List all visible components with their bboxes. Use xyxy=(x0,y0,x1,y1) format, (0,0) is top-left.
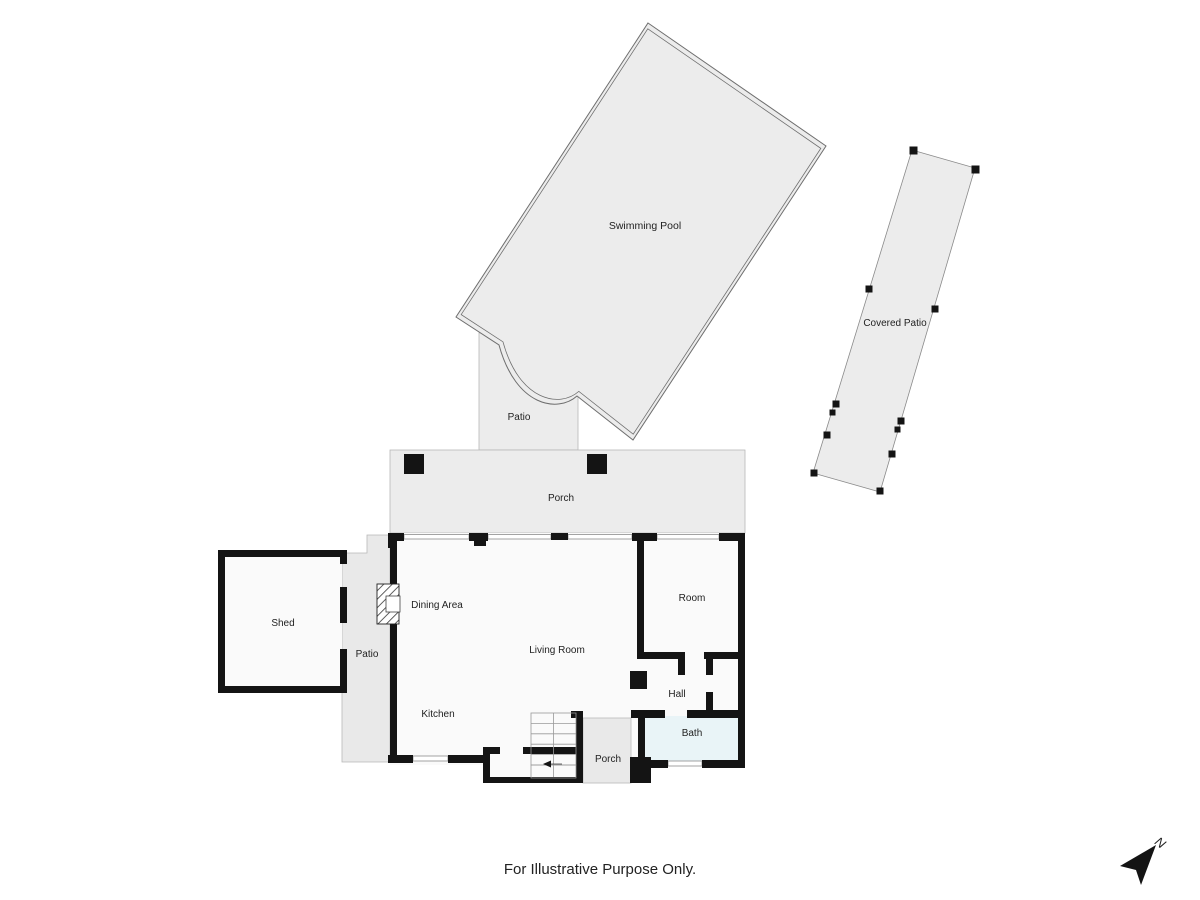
window xyxy=(657,535,719,540)
floor-plan-page: Patio Shed Patio Porch xyxy=(0,0,1200,900)
window xyxy=(404,535,469,540)
shed-label: Shed xyxy=(271,618,294,629)
patio-post xyxy=(824,432,831,439)
patio-post xyxy=(895,427,901,433)
room-label: Room xyxy=(679,593,706,604)
fireplace-notch xyxy=(386,596,400,612)
wall-segment xyxy=(576,711,583,783)
wall-segment xyxy=(706,692,713,710)
porch-bottom-label: Porch xyxy=(595,754,621,765)
fireplace xyxy=(377,584,400,624)
kitchen-label: Kitchen xyxy=(421,709,454,720)
covered-patio-label: Covered Patio xyxy=(863,318,927,329)
wall-segment xyxy=(637,652,685,659)
wall-segment xyxy=(483,747,500,754)
wall-segment xyxy=(638,716,645,761)
pool-patio-label: Patio xyxy=(508,412,531,423)
window xyxy=(488,535,551,540)
wall-segment xyxy=(631,710,665,718)
window xyxy=(668,761,702,766)
wall-segment xyxy=(390,622,397,758)
porch-top-label: Porch xyxy=(548,493,574,504)
bath-floor xyxy=(645,716,738,762)
wall-segment xyxy=(630,671,647,689)
disclaimer-text: For Illustrative Purpose Only. xyxy=(504,861,696,878)
patio-post xyxy=(972,166,980,174)
porch-top-area: Porch xyxy=(390,450,745,533)
wall-segment xyxy=(650,760,668,768)
floor-plan: Patio Shed Patio Porch xyxy=(0,0,1200,900)
wall-segment xyxy=(390,533,397,586)
window xyxy=(568,535,632,540)
wall-segment xyxy=(551,533,568,540)
wall-segment xyxy=(702,760,740,768)
porch-post xyxy=(587,454,607,474)
wall-segment xyxy=(388,755,413,763)
wall-segment xyxy=(678,659,685,675)
patio-post xyxy=(877,488,884,495)
compass: N xyxy=(1120,834,1169,885)
north-arrow-icon xyxy=(1120,845,1156,885)
porch-post xyxy=(404,454,424,474)
house: Dining Area Living Room Kitchen Room Hal… xyxy=(377,533,745,783)
porch-top-shape xyxy=(390,450,745,533)
wall-segment xyxy=(632,533,657,541)
wall-segment xyxy=(738,533,745,768)
wall-segment xyxy=(218,686,347,693)
side-patio-area: Patio xyxy=(342,535,390,762)
covered-patio-area: Covered Patio xyxy=(811,147,980,495)
shed-area: Shed xyxy=(218,550,347,693)
patio-post xyxy=(866,286,873,293)
compass-north-label: N xyxy=(1152,834,1169,852)
patio-post xyxy=(830,410,836,416)
living-room-label: Living Room xyxy=(529,645,585,656)
patio-post xyxy=(811,470,818,477)
wall-segment xyxy=(340,649,347,693)
wall-segment xyxy=(706,659,713,675)
wall-segment xyxy=(523,747,580,754)
patio-post xyxy=(898,418,905,425)
wall-segment xyxy=(218,550,225,693)
wall-segment xyxy=(474,540,486,546)
bath-label: Bath xyxy=(682,728,703,739)
side-patio-label: Patio xyxy=(356,649,379,660)
wall-segment xyxy=(448,755,485,763)
swimming-pool-label: Swimming Pool xyxy=(609,220,681,232)
wall-segment xyxy=(218,550,347,557)
wall-segment xyxy=(340,587,347,623)
wall-segment xyxy=(469,533,488,541)
patio-post xyxy=(889,451,896,458)
porch-bottom-shape xyxy=(583,718,631,783)
wall-segment xyxy=(687,710,745,718)
patio-post xyxy=(932,306,939,313)
window xyxy=(413,756,448,761)
wall-segment xyxy=(637,533,644,659)
hall-label: Hall xyxy=(668,689,685,700)
wall-segment xyxy=(340,550,347,564)
patio-post xyxy=(833,401,840,408)
patio-post xyxy=(910,147,918,155)
dining-area-label: Dining Area xyxy=(411,600,463,611)
